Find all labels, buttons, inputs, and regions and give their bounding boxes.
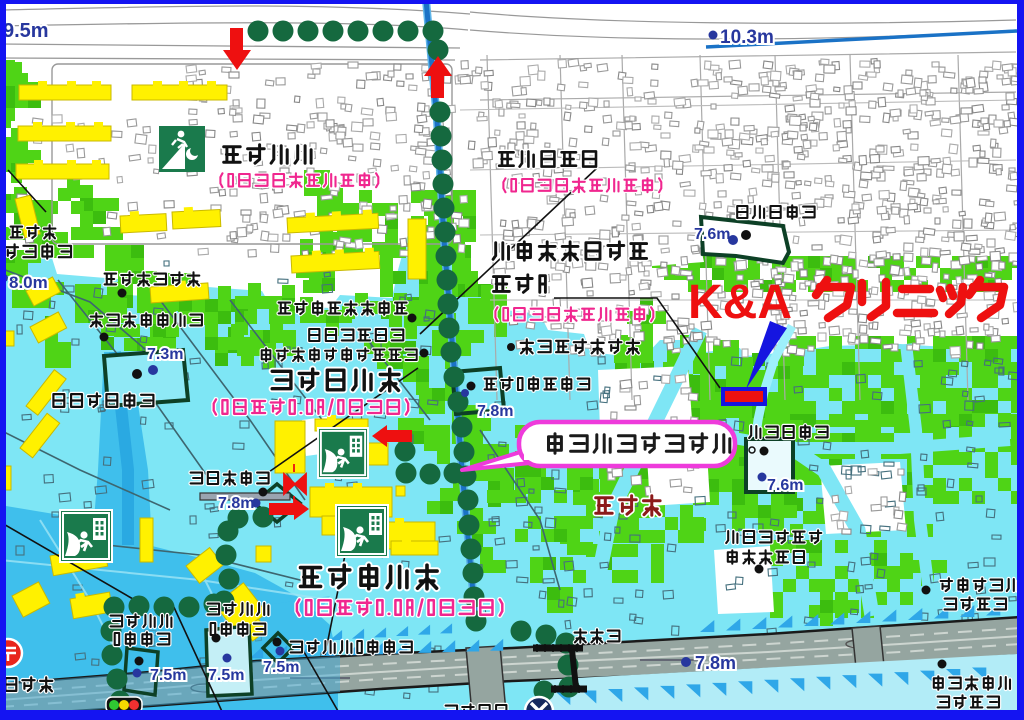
svg-text:7.5m: 7.5m [263, 659, 299, 676]
svg-text:7.3m: 7.3m [147, 346, 183, 363]
svg-text:7.6m: 7.6m [694, 226, 730, 243]
svg-text:9.5m: 9.5m [3, 20, 49, 42]
svg-text:7.8m: 7.8m [218, 495, 254, 512]
svg-text:7.8m: 7.8m [695, 653, 736, 673]
svg-text:10.3m: 10.3m [720, 27, 774, 48]
svg-text:7.6m: 7.6m [767, 477, 803, 494]
svg-text:7.5m: 7.5m [150, 667, 186, 684]
svg-text:K&A: K&A [688, 276, 792, 329]
svg-text:7.5m: 7.5m [208, 667, 244, 684]
svg-text:8.0m: 8.0m [9, 273, 48, 292]
svg-text:7.8m: 7.8m [477, 403, 513, 420]
